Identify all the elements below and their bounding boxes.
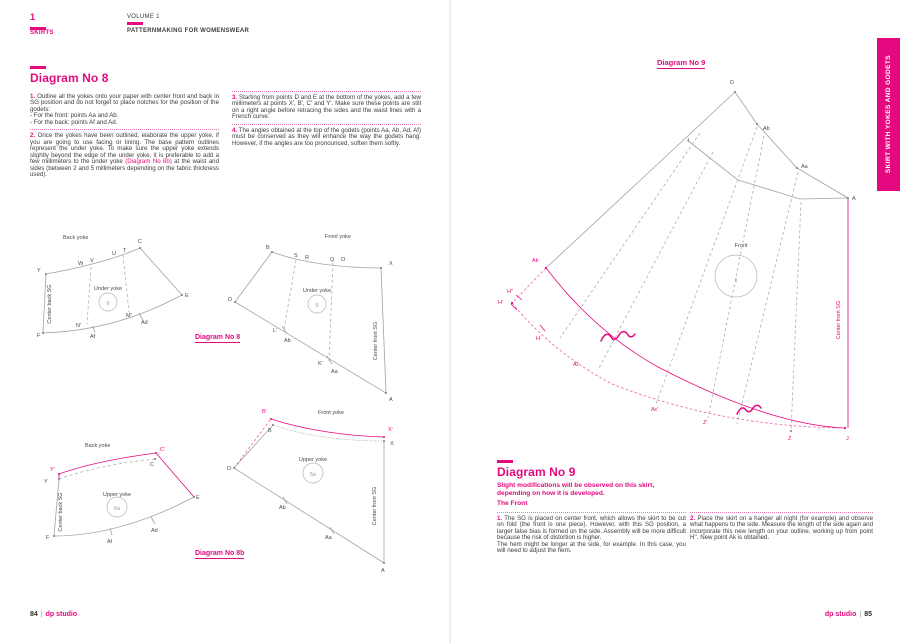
point-label: B [268, 428, 272, 434]
diagram-point-labels: Back yokeYWVUTCEAdM'N'AfFCenter back SGU… [37, 80, 856, 574]
point-label: C' [160, 447, 165, 453]
point-label: Center back SG [47, 284, 53, 323]
point-label: Center front SG [836, 301, 842, 340]
item-text: Place the skirt on a hanger all night (f… [690, 515, 873, 541]
point-label: I [688, 138, 690, 144]
dotted-separator [690, 512, 873, 513]
point-label: D [228, 297, 232, 303]
point-label: U [112, 251, 116, 257]
point-label: Aa [325, 535, 333, 541]
point-label: Q [330, 257, 335, 263]
point-label: Af [107, 539, 113, 545]
point-label: Center back SG [58, 492, 64, 531]
point-label: Ak [532, 258, 539, 264]
point-label: A [389, 397, 393, 403]
handwritten-annotation [601, 332, 635, 341]
point-label: Front yoke [318, 410, 344, 416]
instruction-item-r2: 2. Place the skirt on a hanger all night… [690, 516, 873, 542]
point-label: D [730, 80, 734, 86]
front-upper-yoke-diagram [233, 418, 385, 564]
point-label: Y [44, 479, 48, 485]
right-column-1: 1. The SG is placed on center front, whi… [497, 509, 686, 555]
point-label: 5a [310, 472, 317, 478]
point-label: Ai' [573, 362, 579, 368]
point-label: 6 [106, 301, 109, 307]
point-label: X' [388, 427, 393, 433]
brand-name: dp studio [825, 611, 857, 618]
front-under-yoke-diagram [234, 251, 387, 394]
point-label: J [846, 436, 849, 442]
point-label: 6a [114, 506, 121, 512]
point-label: Ab [284, 338, 291, 344]
point-label: Under yoke [94, 286, 122, 292]
point-label: Y' [50, 467, 55, 473]
point-label: Ac' [651, 407, 658, 413]
point-label: R [305, 255, 309, 261]
point-label: H'' [507, 289, 513, 295]
point-label: Z' [703, 420, 707, 426]
point-label: X [389, 261, 393, 267]
point-label: B' [262, 409, 267, 415]
point-label: Ad [151, 528, 158, 534]
point-label: H' [498, 300, 503, 306]
point-label: Aa [331, 369, 339, 375]
point-label: Center front SG [372, 487, 378, 526]
point-label: X [390, 441, 394, 447]
point-label: A [381, 568, 385, 574]
point-label: Center front SG [373, 322, 379, 361]
point-label: Front [735, 243, 748, 249]
point-label: K' [318, 361, 323, 367]
diagram8b-caption: Diagram No 8b [195, 550, 244, 559]
item-text: The SG is placed on center front, which … [497, 515, 686, 554]
handwritten-annotation [737, 405, 761, 414]
page-gutter [449, 0, 451, 643]
point-label: O [341, 257, 346, 263]
point-label: E [185, 293, 189, 299]
point-label: W [78, 261, 84, 267]
point-label: B [266, 245, 270, 251]
book-spread: 1 SKIRTS VOLUME 1 PATTERNMAKING FOR WOME… [0, 0, 900, 643]
point-label: H [536, 336, 540, 342]
footer-right: dp studio|85 [700, 611, 872, 618]
point-label: Ab [763, 126, 770, 132]
new-hem-curve [546, 268, 845, 428]
point-label: F [46, 535, 50, 541]
page-number: 85 [864, 611, 872, 618]
diagram8-caption: Diagram No 8 [195, 334, 240, 343]
point-label: Back yoke [63, 235, 88, 241]
point-label: C [150, 462, 154, 468]
brand-name: dp studio [46, 611, 78, 618]
original-hem-curve [512, 303, 845, 428]
point-label: D [227, 466, 231, 472]
point-label: F [37, 333, 41, 339]
point-label: V [90, 258, 94, 264]
point-label: L' [273, 328, 277, 334]
point-label: Aa [801, 164, 809, 170]
point-label: Back yoke [85, 443, 110, 449]
point-label: 5 [315, 303, 318, 309]
point-label: Z [788, 436, 792, 442]
skirt-front-diagram [511, 91, 849, 432]
dotted-separator [497, 512, 686, 513]
point-label: 1 [734, 278, 737, 284]
point-label: Af [90, 334, 96, 340]
diagram9-heading-block: Diagram No 9 Slight modifications will b… [497, 460, 654, 508]
point-label: C [138, 239, 142, 245]
point-label: S [294, 253, 298, 259]
point-label: Upper yoke [299, 457, 327, 463]
diagram9-heading: Diagram No 9 [497, 465, 654, 479]
point-label: E [196, 495, 200, 501]
diagram9-caption: Diagram No 9 [657, 58, 705, 69]
point-label: N' [76, 323, 81, 329]
point-label: Front yoke [325, 234, 351, 240]
point-label: Upper yoke [103, 492, 131, 498]
point-label: Under yoke [303, 288, 331, 294]
right-column-2: 2. Place the skirt on a hanger all night… [690, 509, 873, 542]
diagram9-subtitle: Slight modifications will be observed on… [497, 482, 654, 498]
point-label: Ab [279, 505, 286, 511]
point-label: Ad [141, 320, 148, 326]
point-label: Y [37, 268, 41, 274]
footer-left: 84|dp studio [30, 611, 77, 618]
diagram9-subheading: The Front [497, 500, 654, 508]
point-label: A [852, 196, 856, 202]
page-number: 84 [30, 611, 38, 618]
instruction-item-r1: 1. The SG is placed on center front, whi… [497, 516, 686, 555]
point-label: M' [126, 313, 132, 319]
